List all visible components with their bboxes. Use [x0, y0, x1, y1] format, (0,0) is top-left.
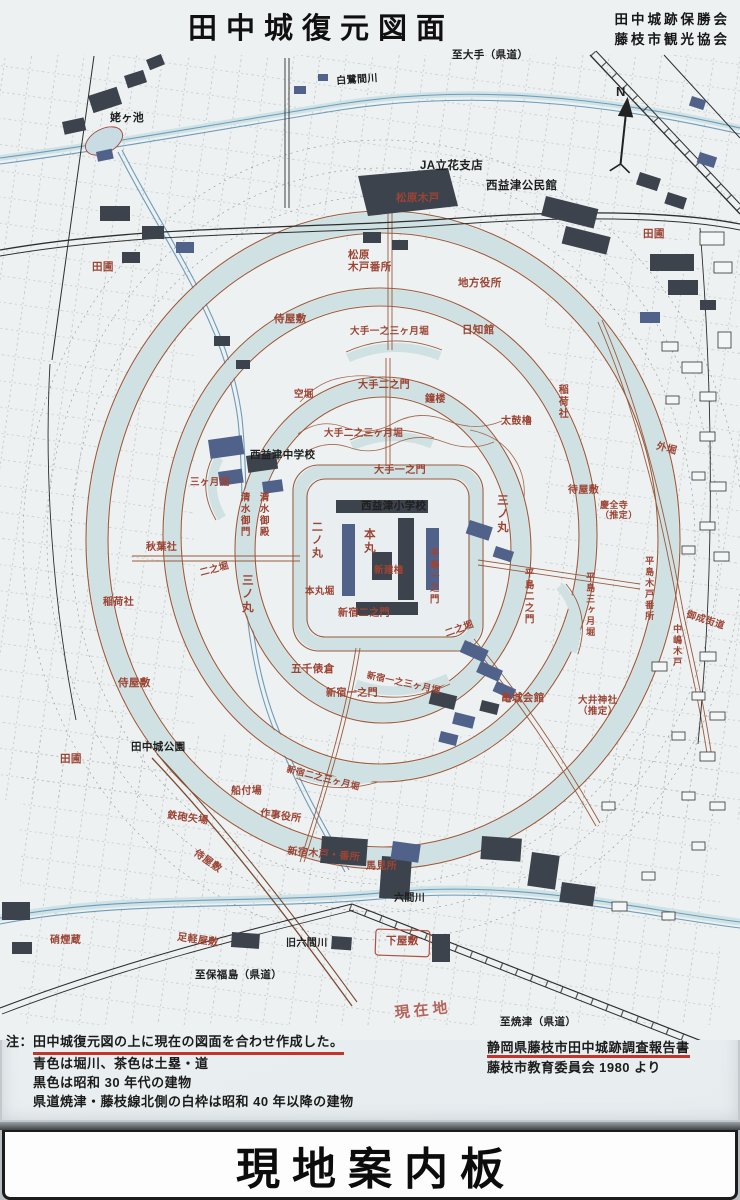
sign-panel: 田中城復元図面 田中城跡保勝会 藤枝市観光協会 N 姥ヶ池白鷺間川至大手（県道）… — [0, 0, 740, 1122]
sign-bottom-edge — [0, 1122, 740, 1130]
compass-north-label: N — [616, 84, 625, 99]
legend-notes: 注： 田中城復元図の上に現在の図面を合わせ作成した。 青色は堀川、茶色は土塁・道… — [6, 1033, 486, 1111]
note-line-4: 県道焼津・藤枝線北側の白枠は昭和 40 年以降の建物 — [33, 1093, 486, 1112]
org-tourism-association: 藤枝市観光協会 — [615, 30, 731, 50]
issuing-organizations: 田中城跡保勝会 藤枝市観光協会 — [615, 10, 731, 51]
caption-bar: 現地案内板 — [2, 1130, 738, 1200]
castle-map-drawing — [0, 0, 740, 1040]
signboard-photo: 田中城復元図面 田中城跡保勝会 藤枝市観光協会 N 姥ヶ池白鷺間川至大手（県道）… — [0, 0, 740, 1200]
note-prefix: 注： — [6, 1033, 33, 1055]
map-title: 田中城復元図面 — [188, 5, 454, 47]
source-citation: 静岡県藤枝市田中城跡調査報告書 藤枝市教育委員会 1980 より — [487, 1038, 690, 1078]
caption-title: 現地案内板 — [224, 1133, 516, 1197]
note-line-1: 田中城復元図の上に現在の図面を合わせ作成した。 — [33, 1033, 344, 1055]
org-preservation-society: 田中城跡保勝会 — [615, 10, 731, 30]
note-line-2: 青色は堀川、茶色は土塁・道 — [33, 1055, 486, 1074]
note-line-3: 黒色は昭和 30 年代の建物 — [33, 1074, 486, 1093]
source-report-title: 静岡県藤枝市田中城跡調査報告書 — [487, 1040, 690, 1058]
source-publisher: 藤枝市教育委員会 1980 より — [487, 1058, 690, 1078]
